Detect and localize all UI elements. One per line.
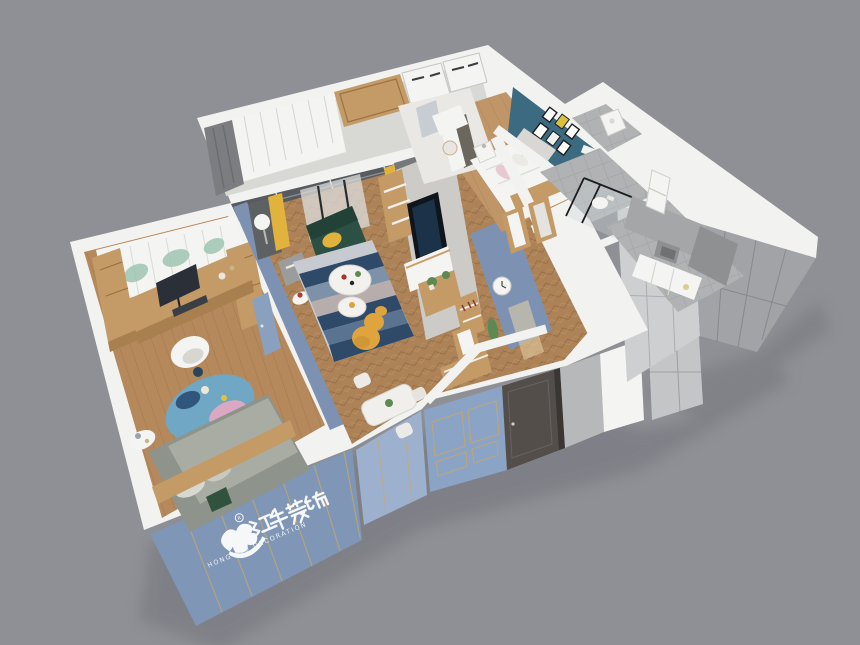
door-handle [511, 422, 514, 425]
vanity-stool [443, 141, 457, 155]
coffee-table-large [329, 265, 371, 295]
desk-decor [219, 273, 226, 280]
wall-clock [493, 277, 511, 295]
table-plant [355, 271, 361, 277]
bedside-lamp [482, 144, 486, 148]
rug-toy [193, 367, 203, 377]
toilet [592, 197, 608, 209]
coffee-table-small [338, 297, 366, 317]
dining-plant [385, 399, 393, 407]
render-canvas: R HONG NIU DECORATION [0, 0, 860, 645]
counter-item [683, 284, 689, 290]
entry-side-wall [560, 354, 604, 448]
floor-lamp [254, 214, 270, 230]
floorplan-render: R HONG NIU DECORATION [0, 0, 860, 645]
red-flowers [297, 292, 302, 297]
